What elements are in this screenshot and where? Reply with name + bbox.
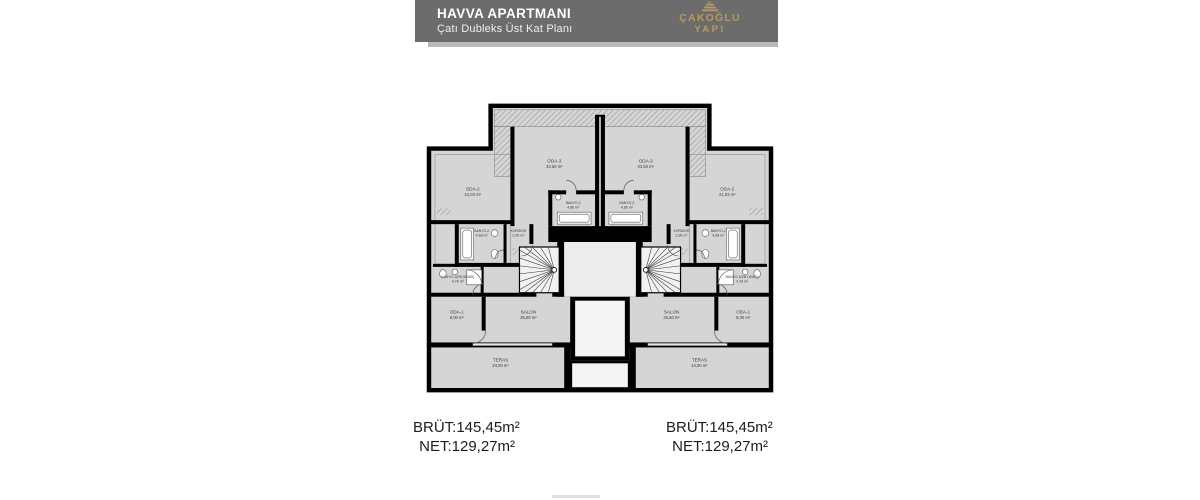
- unit-right-stats: BRÜT:145,45m² NET:129,27m²: [666, 418, 768, 456]
- room-label-koridor-right: KORIDOR: [674, 229, 690, 233]
- room-area-oda3-right: 33,50 m²: [638, 164, 655, 169]
- room-area-teras-right: 24,00 m²: [691, 363, 708, 368]
- room-label-banyo1-right: BANYO-1(EB.ODASI): [726, 275, 759, 279]
- brand-name: ÇAKOĞLU: [665, 12, 755, 24]
- room-area-teras-left: 24,00 m²: [492, 363, 509, 368]
- room-label-oda2-right: ODA-2: [720, 186, 734, 191]
- room-label-koridor-left: KORIDOR: [511, 229, 527, 233]
- staircase-left: [519, 247, 559, 293]
- room-label-salon-right: SALON: [664, 310, 679, 315]
- page-title: HAVVA APARTMANI: [437, 5, 572, 22]
- room-area-banyo2-right: 4,68 m²: [712, 234, 725, 238]
- room-area-banyo1-left: 4,78 m²: [452, 279, 465, 283]
- staircase-right: [641, 247, 681, 293]
- room-area-banyo1-right: 4,78 m²: [736, 279, 749, 283]
- unit-left-brut: BRÜT:145,45m²: [413, 418, 515, 437]
- room-area-koridor-left: 2,90 m²: [512, 234, 525, 238]
- room-label-banyo3-left: BANYO-3: [566, 201, 581, 205]
- unit-right-net: NET:129,27m²: [666, 437, 768, 456]
- room-label-teras-left: TERAS: [493, 357, 508, 362]
- brand-name-2: YAPI: [665, 24, 755, 35]
- room-label-teras-right: TERAS: [692, 357, 707, 362]
- room-area-banyo3-left: 4,86 m²: [567, 206, 580, 210]
- room-label-banyo1-left: BANYO-1(EB.ODASI): [441, 275, 474, 279]
- room-area-banyo2-left: 4,68 m²: [476, 234, 489, 238]
- room-label-oda3-right: ODA-3: [639, 158, 653, 163]
- room-label-oda2-left: ODA-2: [466, 186, 480, 191]
- floor-plan: ODA-3 33,50 m² ODA-2 21,03 m² BANYO-3 4,…: [425, 100, 775, 395]
- stair-lobby: [564, 242, 636, 297]
- room-area-salon-right: 25,50 m²: [663, 315, 680, 320]
- room-area-koridor-right: 2,90 m²: [675, 234, 688, 238]
- floor-plan-svg: ODA-3 33,50 m² ODA-2 21,03 m² BANYO-3 4,…: [425, 100, 775, 395]
- pyramid-logo-icon: [700, 1, 720, 12]
- room-area-oda3-left: 33,50 m²: [546, 164, 563, 169]
- room-label-oda3-left: ODA-3: [547, 158, 561, 163]
- room-label-salon-left: SALON: [521, 310, 536, 315]
- page-subtitle: Çatı Dubleks Üst Kat Planı: [437, 22, 572, 36]
- unit-left-net: NET:129,27m²: [413, 437, 515, 456]
- room-area-banyo3-right: 4,86 m²: [621, 206, 634, 210]
- room-area-oda2-left: 21,03 m²: [465, 192, 482, 197]
- header-titles: HAVVA APARTMANI Çatı Dubleks Üst Kat Pla…: [437, 5, 572, 36]
- room-area-oda1-right: 8,00 m²: [736, 315, 751, 320]
- unit-left-stats: BRÜT:145,45m² NET:129,27m²: [413, 418, 515, 456]
- room-label-banyo2-right: BANYO-2: [711, 229, 726, 233]
- brand-logo: ÇAKOĞLU YAPI: [665, 0, 755, 35]
- room-label-oda1-right: ODA-1: [736, 310, 750, 315]
- room-area-salon-left: 25,50 m²: [520, 315, 537, 320]
- room-area-oda2-right: 21,03 m²: [719, 192, 736, 197]
- header-underline: [428, 42, 778, 47]
- page-bottom-artifact: [552, 495, 600, 498]
- unit-right-brut: BRÜT:145,45m²: [666, 418, 768, 437]
- elevator-shaft: [567, 297, 633, 390]
- header-bar: HAVVA APARTMANI Çatı Dubleks Üst Kat Pla…: [415, 0, 778, 42]
- room-label-oda1-left: ODA-1: [450, 310, 464, 315]
- room-label-banyo3-right: BANYO-3: [619, 201, 634, 205]
- room-label-banyo2-left: BANYO-2: [474, 229, 489, 233]
- room-area-oda1-left: 8,00 m²: [450, 315, 465, 320]
